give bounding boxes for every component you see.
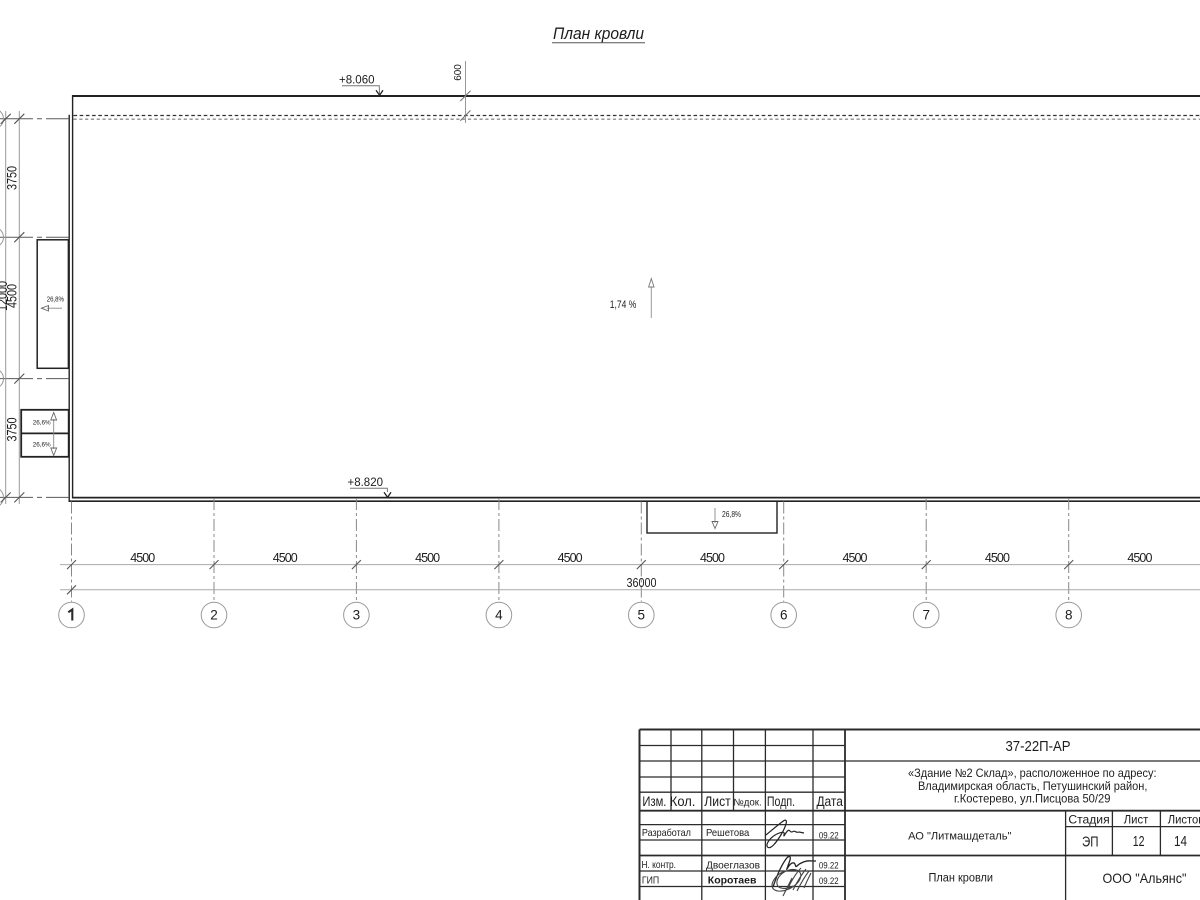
svg-text:4500: 4500 [130, 551, 155, 565]
svg-text:26,8%: 26,8% [722, 510, 741, 519]
svg-text:ООО "Альянс": ООО "Альянс" [1103, 870, 1187, 886]
svg-text:09.22: 09.22 [819, 876, 839, 887]
svg-text:План кровли: План кровли [929, 873, 994, 885]
svg-text:4500: 4500 [415, 551, 440, 565]
svg-text:26,8%: 26,8% [47, 295, 65, 304]
svg-text:37-22П-АР: 37-22П-АР [1006, 739, 1071, 755]
svg-text:ГИП: ГИП [642, 874, 659, 886]
svg-text:4: 4 [495, 608, 503, 623]
svg-text:36000: 36000 [627, 575, 657, 590]
svg-text:26,6%: 26,6% [33, 419, 51, 426]
svg-text:г.Костерево, ул.Писцова 50/29: г.Костерево, ул.Писцова 50/29 [954, 792, 1111, 806]
svg-text:+8.060: +8.060 [339, 75, 375, 87]
svg-text:1,74 %: 1,74 % [610, 299, 637, 311]
svg-text:Коротаев: Коротаев [708, 876, 757, 887]
svg-text:26,6%: 26,6% [33, 441, 51, 448]
svg-text:Стадия: Стадия [1068, 813, 1109, 827]
svg-text:4500: 4500 [985, 551, 1010, 565]
svg-text:14: 14 [1174, 834, 1187, 850]
svg-text:3: 3 [353, 608, 361, 623]
svg-text:12: 12 [1133, 834, 1145, 850]
svg-text:4500: 4500 [843, 551, 868, 565]
svg-text:5: 5 [638, 608, 646, 623]
svg-text:7: 7 [922, 608, 930, 623]
svg-text:09.22: 09.22 [819, 861, 839, 872]
svg-text:Кол.: Кол. [670, 794, 696, 810]
svg-text:Двоеглазов: Двоеглазов [706, 860, 760, 871]
svg-text:Подп.: Подп. [767, 794, 795, 810]
svg-text:План кровли: План кровли [553, 25, 644, 43]
svg-text:Листов: Листов [1168, 813, 1200, 827]
svg-text:09.22: 09.22 [819, 830, 839, 841]
svg-text:4500: 4500 [1127, 551, 1152, 565]
svg-text:ЭП: ЭП [1082, 833, 1099, 850]
svg-text:6: 6 [780, 608, 788, 623]
svg-text:Разработал: Разработал [642, 827, 691, 839]
svg-text:АО "Литмашдеталь": АО "Литмашдеталь" [908, 831, 1011, 843]
svg-text:4500: 4500 [273, 551, 298, 565]
svg-text:2: 2 [210, 608, 218, 623]
svg-text:8: 8 [1065, 608, 1073, 623]
svg-text:4500: 4500 [558, 551, 583, 565]
svg-text:Лист: Лист [1124, 813, 1149, 827]
svg-text:3750: 3750 [3, 166, 19, 190]
svg-text:4500: 4500 [3, 284, 19, 308]
svg-text:+8.820: +8.820 [348, 477, 384, 489]
svg-text:Лист: Лист [704, 794, 731, 810]
svg-text:3750: 3750 [3, 417, 19, 441]
svg-text:4500: 4500 [700, 551, 725, 565]
svg-text:Н. контр.: Н. контр. [642, 860, 677, 871]
svg-text:№док.: №док. [733, 798, 761, 809]
svg-text:Изм.: Изм. [642, 794, 666, 810]
svg-text:600: 600 [453, 64, 464, 81]
svg-text:Решетова: Решетова [706, 828, 750, 839]
svg-text:Дата: Дата [816, 794, 843, 810]
